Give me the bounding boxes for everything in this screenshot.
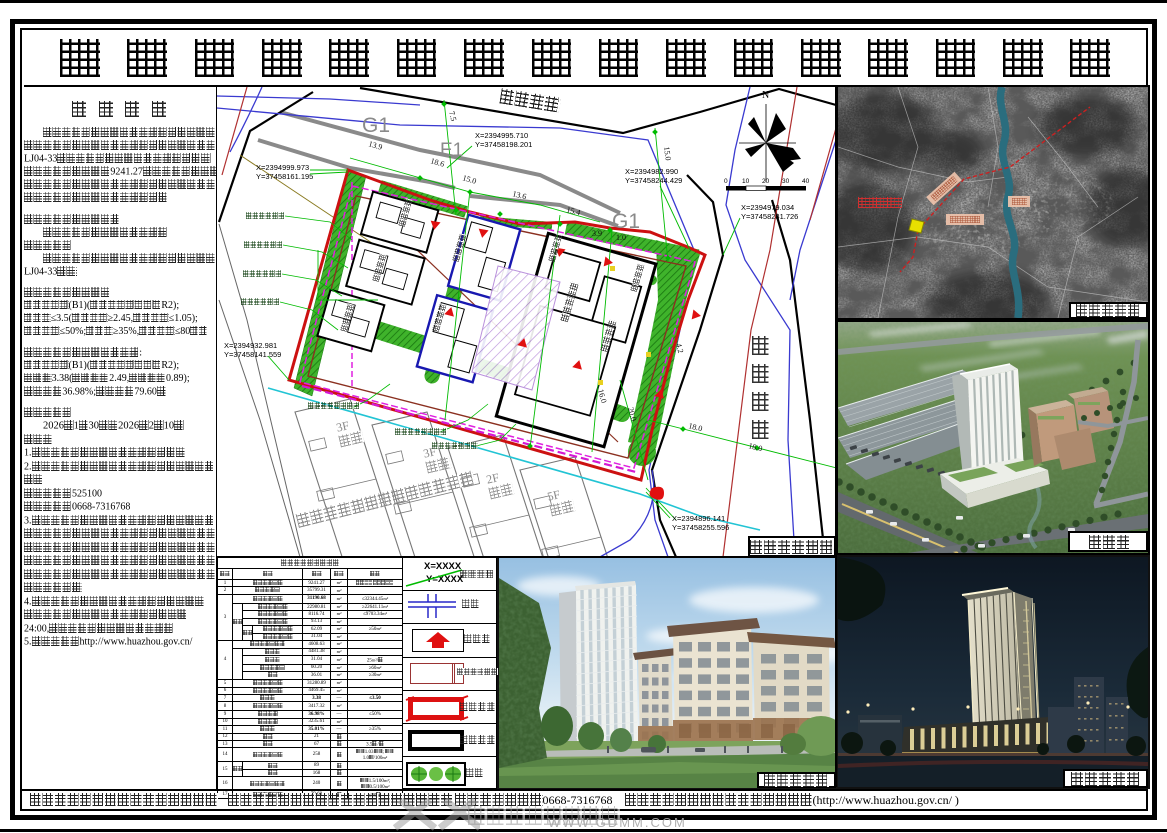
svg-text:G1: G1	[362, 114, 390, 137]
svg-text:X=2394932.981: X=2394932.981	[224, 341, 277, 350]
svg-text:Y=37458255.596: Y=37458255.596	[672, 523, 729, 532]
svg-text:30: 30	[782, 178, 790, 185]
svg-text:10: 10	[742, 178, 750, 185]
svg-text:Y=37458141.559: Y=37458141.559	[224, 350, 281, 359]
svg-text:N: N	[762, 90, 769, 101]
svg-text:Y=37458161.195: Y=37458161.195	[256, 172, 313, 181]
svg-text:0: 0	[724, 178, 728, 185]
svg-text:Y=37458244.429: Y=37458244.429	[625, 176, 682, 185]
svg-text:20: 20	[762, 178, 770, 185]
svg-text:3.9: 3.9	[592, 229, 602, 238]
svg-text:X=2394999.973: X=2394999.973	[256, 163, 309, 172]
svg-text:E1: E1	[440, 140, 463, 161]
svg-text:X=2394979.034: X=2394979.034	[741, 203, 794, 212]
svg-text:40: 40	[802, 178, 810, 185]
svg-text:X=2394995.710: X=2394995.710	[475, 131, 528, 140]
svg-text:Y=37458198.201: Y=37458198.201	[475, 140, 532, 149]
svg-text:X=2394896.141: X=2394896.141	[672, 514, 725, 523]
svg-text:X=2394982.990: X=2394982.990	[625, 167, 678, 176]
svg-text:1.0: 1.0	[616, 233, 626, 242]
svg-text:G1: G1	[612, 210, 640, 233]
svg-text:Y=37458281.726: Y=37458281.726	[741, 212, 798, 221]
